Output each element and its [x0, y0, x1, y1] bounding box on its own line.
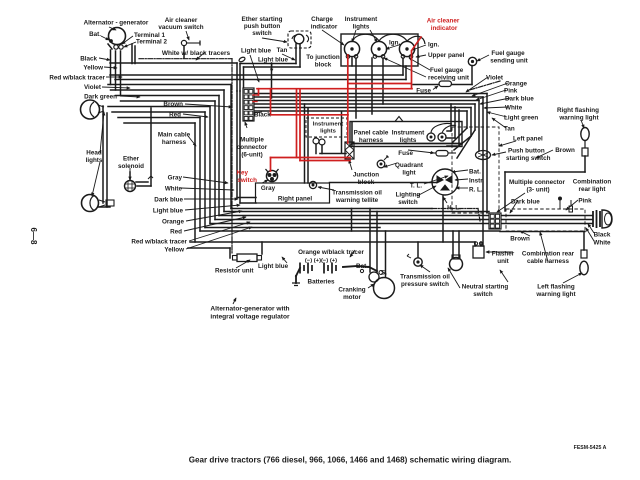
svg-text:(−) (+)(−) (+): (−) (+)(−) (+)	[305, 258, 337, 264]
svg-text:Right flashing: Right flashing	[557, 107, 599, 114]
svg-text:H. L.: H. L.	[447, 205, 461, 212]
svg-text:Violet: Violet	[486, 75, 504, 82]
svg-text:Dark blue: Dark blue	[154, 197, 183, 204]
svg-text:switch: switch	[398, 199, 418, 206]
svg-text:Left panel: Left panel	[513, 136, 543, 143]
svg-text:Light blue: Light blue	[153, 208, 184, 215]
svg-text:Yellow: Yellow	[164, 247, 184, 254]
svg-text:Lighting: Lighting	[396, 192, 421, 199]
svg-text:6—8: 6—8	[29, 228, 38, 245]
svg-text:Flasher: Flasher	[492, 251, 515, 258]
svg-text:indicator: indicator	[431, 25, 458, 32]
svg-text:Charge: Charge	[311, 16, 333, 23]
svg-text:connector: connector	[237, 144, 268, 151]
svg-text:Red w/black tracer: Red w/black tracer	[49, 75, 105, 82]
svg-text:Alternator-generator with: Alternator-generator with	[210, 306, 289, 313]
svg-text:Dark blue: Dark blue	[505, 96, 534, 103]
svg-text:Terminal 2: Terminal 2	[136, 39, 168, 46]
svg-text:Cranking: Cranking	[338, 287, 365, 294]
svg-text:Upper panel: Upper panel	[428, 52, 465, 59]
svg-text:Gear drive tractors (766 diese: Gear drive tractors (766 diesel, 966, 10…	[189, 456, 512, 465]
svg-text:R. L.: R. L.	[469, 187, 483, 194]
svg-text:warning light: warning light	[558, 115, 599, 122]
svg-text:White: White	[505, 105, 523, 112]
svg-text:cable harness: cable harness	[527, 258, 570, 265]
svg-text:Ether: Ether	[123, 156, 140, 163]
svg-text:Instr.: Instr.	[469, 178, 484, 185]
svg-text:Junction: Junction	[353, 172, 379, 179]
svg-text:switch: switch	[252, 30, 272, 37]
svg-text:To junction: To junction	[306, 54, 340, 61]
svg-text:Ether starting: Ether starting	[242, 16, 283, 23]
svg-text:Gray: Gray	[168, 175, 183, 182]
svg-text:Pink: Pink	[578, 198, 592, 205]
svg-text:Red: Red	[169, 112, 181, 119]
svg-text:switch: switch	[473, 291, 493, 298]
svg-text:Air cleaner: Air cleaner	[427, 18, 460, 25]
svg-text:Dark blue: Dark blue	[511, 199, 540, 206]
svg-text:Light blue: Light blue	[241, 48, 272, 55]
svg-text:Orange w/black tracer: Orange w/black tracer	[298, 249, 364, 256]
svg-text:integral voltage regulator: integral voltage regulator	[210, 314, 290, 321]
svg-text:Brown: Brown	[163, 101, 183, 108]
svg-text:Key: Key	[236, 170, 248, 177]
svg-text:Multiple connector: Multiple connector	[509, 179, 566, 186]
svg-text:Fuse: Fuse	[416, 88, 431, 95]
svg-text:Bat.: Bat.	[469, 169, 481, 176]
svg-text:block: block	[315, 62, 332, 69]
svg-text:Right panel: Right panel	[278, 196, 313, 203]
svg-text:(6-unit): (6-unit)	[241, 152, 262, 159]
svg-text:push button: push button	[244, 23, 281, 30]
svg-text:warning light: warning light	[535, 291, 576, 298]
svg-text:block: block	[358, 179, 375, 186]
svg-text:White: White	[165, 186, 183, 193]
svg-text:Bat.: Bat.	[356, 263, 368, 270]
svg-text:Brown: Brown	[510, 236, 530, 243]
svg-text:Air cleaner: Air cleaner	[165, 17, 198, 24]
svg-text:S.: S.	[381, 270, 387, 277]
svg-text:Black: Black	[594, 232, 611, 239]
svg-text:Resistor unit: Resistor unit	[215, 268, 254, 275]
svg-text:Multiple: Multiple	[240, 137, 264, 144]
svg-text:Instrument: Instrument	[345, 16, 378, 23]
svg-text:FESM-5425 A: FESM-5425 A	[574, 445, 607, 451]
svg-text:White: White	[593, 240, 611, 247]
svg-text:Combination rear: Combination rear	[522, 251, 575, 258]
svg-text:White w/ black tracers: White w/ black tracers	[162, 50, 231, 57]
svg-text:Dark green: Dark green	[84, 94, 117, 101]
svg-text:Red w/black tracer: Red w/black tracer	[131, 239, 187, 246]
svg-text:Head: Head	[86, 150, 102, 157]
svg-text:lights: lights	[400, 137, 417, 144]
svg-text:receiving unit: receiving unit	[428, 75, 470, 82]
svg-text:Neutral starting: Neutral starting	[462, 284, 509, 291]
svg-text:Pink: Pink	[504, 88, 518, 95]
svg-text:Tan: Tan	[504, 126, 515, 133]
svg-text:Brown: Brown	[555, 147, 575, 154]
svg-text:T. L.: T. L.	[410, 183, 422, 190]
svg-text:starting switch: starting switch	[506, 155, 551, 162]
svg-text:Transmission oil: Transmission oil	[400, 274, 450, 281]
svg-text:Fuel gauge: Fuel gauge	[491, 50, 525, 57]
svg-text:lights: lights	[320, 129, 336, 135]
svg-text:lights: lights	[86, 157, 103, 164]
svg-text:rear light: rear light	[579, 186, 607, 193]
svg-text:Alternator - generator: Alternator - generator	[84, 20, 149, 27]
svg-text:harness: harness	[359, 137, 384, 144]
svg-text:Quadrant: Quadrant	[395, 162, 424, 169]
svg-text:solenoid: solenoid	[118, 163, 144, 170]
svg-text:Instrument: Instrument	[392, 130, 425, 137]
svg-text:Left flashing: Left flashing	[537, 284, 575, 291]
svg-text:Black: Black	[254, 112, 271, 119]
svg-text:Bat.: Bat.	[89, 31, 101, 38]
svg-text:Fuel gauge: Fuel gauge	[430, 67, 464, 74]
svg-text:Violet: Violet	[84, 84, 102, 91]
svg-text:light: light	[402, 170, 416, 177]
svg-text:Ign.: Ign.	[389, 40, 400, 47]
svg-text:Red: Red	[170, 229, 182, 236]
svg-text:Batteries: Batteries	[308, 279, 335, 286]
svg-text:Fuse: Fuse	[398, 150, 413, 157]
svg-text:harness: harness	[162, 139, 187, 146]
svg-text:Transmission oil: Transmission oil	[332, 190, 382, 197]
svg-text:Light blue: Light blue	[258, 57, 289, 64]
svg-text:indicator: indicator	[311, 24, 338, 31]
svg-text:unit: unit	[497, 258, 509, 265]
svg-text:motor: motor	[343, 294, 361, 301]
svg-text:Black: Black	[80, 56, 97, 63]
svg-text:switch: switch	[237, 177, 257, 184]
svg-text:lights: lights	[353, 24, 370, 31]
svg-text:Orange: Orange	[505, 81, 528, 88]
svg-text:Panel cable: Panel cable	[354, 130, 389, 137]
svg-text:Gray: Gray	[261, 185, 276, 192]
svg-text:Ign.: Ign.	[428, 42, 439, 49]
svg-text:Main cable: Main cable	[158, 132, 191, 139]
svg-text:vacuum switch: vacuum switch	[158, 24, 203, 31]
svg-text:Light green: Light green	[504, 115, 538, 122]
svg-text:Push button: Push button	[508, 148, 545, 155]
svg-text:Light blue: Light blue	[258, 263, 289, 270]
svg-text:Instrument: Instrument	[313, 122, 343, 128]
svg-text:warning tellite: warning tellite	[335, 197, 379, 204]
svg-text:(3- unit): (3- unit)	[526, 187, 549, 194]
svg-text:Yellow: Yellow	[83, 65, 103, 72]
svg-text:pressure switch: pressure switch	[401, 281, 449, 288]
svg-text:sending unit: sending unit	[490, 58, 528, 65]
svg-text:Tan: Tan	[277, 47, 288, 54]
svg-text:Combination: Combination	[573, 179, 612, 186]
svg-text:Orange: Orange	[162, 219, 185, 226]
